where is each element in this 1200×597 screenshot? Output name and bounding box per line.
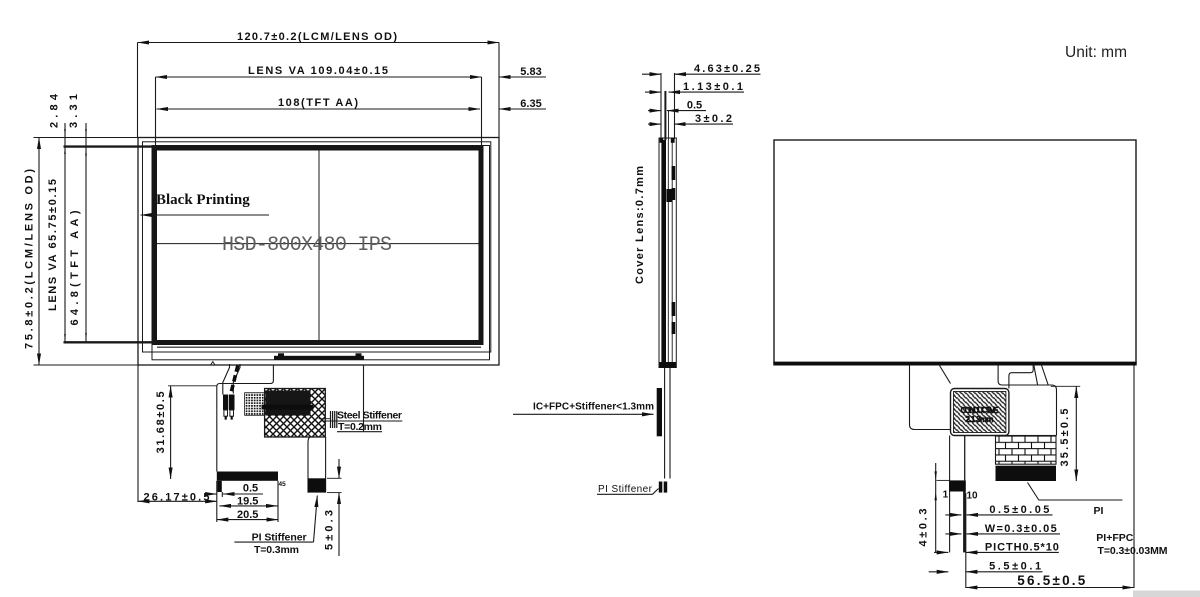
svg-text:Steel Stiffener: Steel Stiffener: [337, 410, 402, 422]
svg-text:6.35: 6.35: [520, 98, 541, 110]
svg-text:4±0.3: 4±0.3: [918, 509, 930, 547]
svg-text:PICTH0.5*10: PICTH0.5*10: [985, 541, 1059, 553]
svg-text:IC+FPC+Stiffener<1.3mm: IC+FPC+Stiffener<1.3mm: [533, 402, 654, 413]
svg-text:5±0.3: 5±0.3: [323, 510, 335, 550]
svg-text:64.8(TFT AA): 64.8(TFT AA): [69, 210, 81, 325]
svg-text:10: 10: [966, 491, 978, 502]
svg-text:5.5±0.1: 5.5±0.1: [989, 560, 1041, 572]
svg-text:20.5: 20.5: [237, 509, 258, 521]
svg-text:CONDUCTIVE: CONDUCTIVE: [961, 406, 1000, 415]
svg-text:PI Stiffener: PI Stiffener: [252, 532, 307, 544]
svg-text:1.13±0.1: 1.13±0.1: [683, 81, 743, 93]
svg-text:LENS VA 109.04±0.15: LENS VA 109.04±0.15: [248, 65, 388, 77]
svg-text:4.63±0.25: 4.63±0.25: [694, 63, 760, 75]
svg-text:Unit: mm: Unit: mm: [1065, 44, 1127, 61]
svg-text:19.5: 19.5: [237, 495, 258, 507]
svg-text:LENS VA 65.75±0.15: LENS VA 65.75±0.15: [47, 179, 59, 311]
svg-text:PI Stiffener: PI Stiffener: [598, 484, 653, 495]
svg-text:75.8±0.2(LCM/LENS OD): 75.8±0.2(LCM/LENS OD): [24, 169, 36, 349]
svg-text:3.31: 3.31: [68, 94, 80, 128]
svg-text:56.5±0.5: 56.5±0.5: [1017, 573, 1085, 588]
svg-text:T=0.3mm: T=0.3mm: [254, 544, 299, 556]
svg-text:108(TFT AA): 108(TFT AA): [278, 97, 358, 109]
svg-text:0.5: 0.5: [687, 100, 702, 112]
svg-text:T=0.3±0.03MM: T=0.3±0.03MM: [1098, 545, 1168, 557]
svg-text:Cover Lens:0.7mm: Cover Lens:0.7mm: [634, 166, 646, 284]
svg-text:5.83: 5.83: [520, 66, 541, 78]
svg-text:31.68±0.5: 31.68±0.5: [155, 391, 167, 453]
svg-text:0.5±0.05: 0.5±0.05: [989, 504, 1049, 516]
svg-text:0.5: 0.5: [243, 483, 258, 495]
svg-text:HSD-800X480 IPS: HSD-800X480 IPS: [222, 234, 392, 257]
svg-text:3±0.2: 3±0.2: [695, 113, 732, 125]
svg-text:35.5±0.5: 35.5±0.5: [1059, 409, 1071, 467]
svg-text:26.17±0.5: 26.17±0.5: [144, 492, 210, 504]
svg-text:120.7±0.2(LCM/LENS OD): 120.7±0.2(LCM/LENS OD): [237, 31, 397, 43]
svg-text:1: 1: [943, 490, 949, 501]
svg-text:2.84: 2.84: [49, 93, 61, 128]
svg-text:T=0.2mm: T=0.2mm: [338, 421, 382, 433]
svg-text:45: 45: [279, 481, 287, 488]
svg-text:W=0.3±0.05: W=0.3±0.05: [985, 523, 1057, 535]
svg-text:Black Printing: Black Printing: [156, 192, 250, 208]
svg-text:PI: PI: [1094, 505, 1104, 517]
svg-text:2.1 3mm: 2.1 3mm: [966, 415, 994, 424]
svg-text:PI+FPC: PI+FPC: [1096, 532, 1133, 544]
